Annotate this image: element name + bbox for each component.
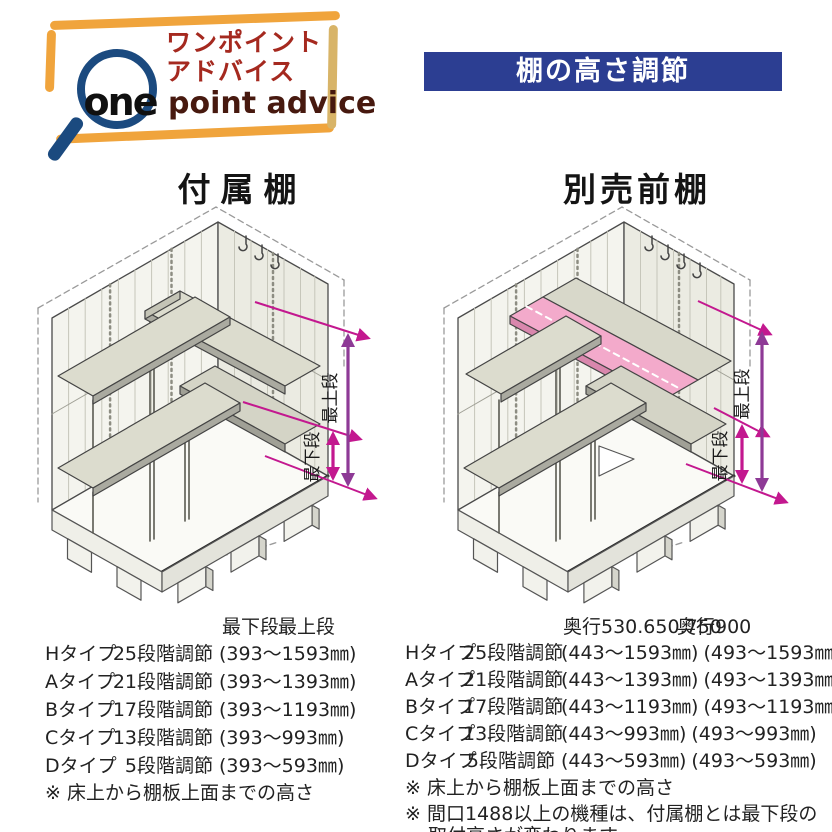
label-top-level: 最上段 (321, 373, 341, 424)
label-top-level: 最上段 (733, 369, 753, 420)
table-row: Dタイプ 5段階調節 (393〜593㎜) (45, 750, 390, 778)
logo-one-text: one (65, 80, 175, 124)
frame-stroke-bottom (56, 123, 334, 144)
table-row: Cタイプ 13段階調節 (393〜993㎜) (45, 722, 390, 750)
table-header: 奥行530.650.750 奥行900 (405, 612, 832, 638)
table-row: Hタイプ 25段階調節 (393〜1593㎜) (45, 638, 390, 666)
label-bottom-level: 最下段 (303, 432, 323, 483)
frame-stroke-left (45, 30, 56, 92)
one-point-advice-logo: one ワンポイント アドバイス point advice (40, 8, 350, 166)
diagram-included-shelf: 最上段 最下段 (30, 206, 402, 612)
col-header-bottom-level: 最下段 (222, 612, 279, 639)
table-row: Hタイプ 25段階調節 (443〜1593㎜) (493〜1593㎜) (405, 638, 832, 665)
heading-optional-front-shelf: 別売前棚 (537, 163, 737, 211)
table-row: Bタイプ 17段階調節 (443〜1193㎜) (493〜1193㎜) (405, 692, 832, 719)
logo-jp-text: ワンポイント アドバイス (166, 28, 322, 86)
table-row: Dタイプ 5段階調節 (443〜593㎜) (493〜593㎜) (405, 746, 832, 773)
logo-jp-line1: ワンポイント (166, 28, 322, 57)
page: one ワンポイント アドバイス point advice 棚の高さ調節 付属棚… (0, 0, 832, 832)
col-header-top-level: 最上段 (278, 612, 335, 639)
logo-jp-line2: アドバイス (166, 57, 322, 86)
heading-included-shelf: 付属棚 (142, 163, 342, 211)
table-note: ※ 床上から棚板上面までの高さ (45, 782, 390, 804)
spec-table-included-shelf: 最下段 最上段 Hタイプ 25段階調節 (393〜1593㎜) Aタイプ 21段… (45, 612, 390, 804)
banner-shelf-height-adjust: 棚の高さ調節 (424, 52, 782, 91)
logo-en-text: point advice (168, 86, 376, 121)
col-header-depth-900: 奥行900 (677, 612, 751, 639)
diagram-optional-front-shelf: 最上段 最下段 (418, 206, 818, 612)
table-row: Aタイプ 21段階調節 (443〜1393㎜) (493〜1393㎜) (405, 665, 832, 692)
table-header: 最下段 最上段 (45, 612, 390, 638)
shed-structure (444, 207, 750, 603)
table-note: ※ 床上から棚板上面までの高さ (405, 777, 832, 799)
table-row: Aタイプ 21段階調節 (393〜1393㎜) (45, 666, 390, 694)
label-bottom-level: 最下段 (711, 431, 731, 482)
table-note: ※ 間口1488以上の機種は、付属棚とは最下段の取付高さが変わります。 (405, 803, 832, 832)
table-row: Bタイプ 17段階調節 (393〜1193㎜) (45, 694, 390, 722)
spec-table-optional-front-shelf: 奥行530.650.750 奥行900 Hタイプ 25段階調節 (443〜159… (405, 612, 832, 832)
table-row: Cタイプ 13段階調節 (443〜993㎜) (493〜993㎜) (405, 719, 832, 746)
